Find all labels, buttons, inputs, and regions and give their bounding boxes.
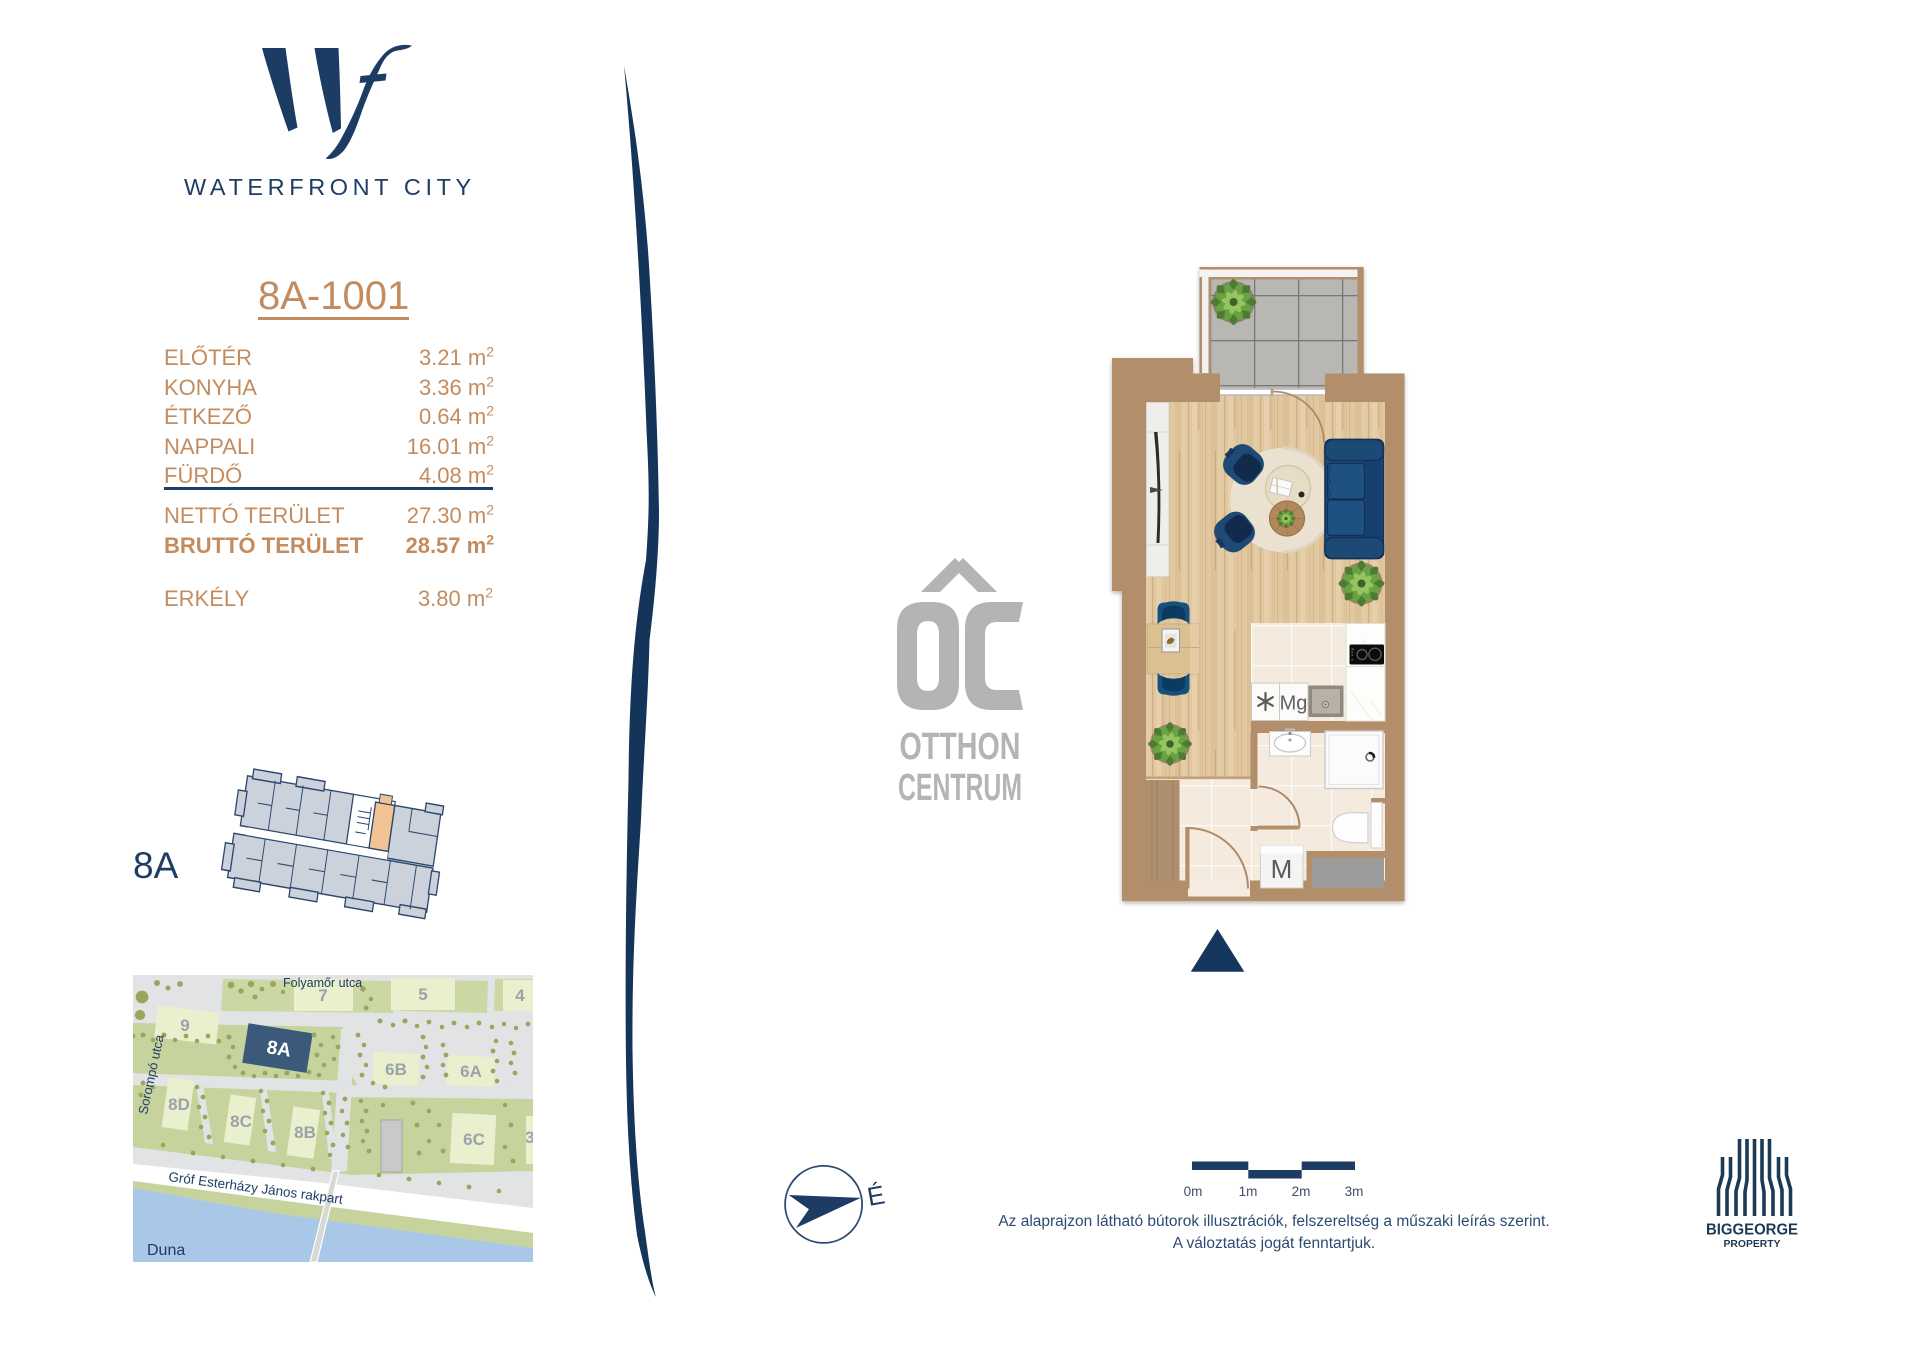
svg-text:8D: 8D	[168, 1095, 190, 1114]
svg-text:É: É	[865, 1179, 887, 1212]
svg-text:CENTRUM: CENTRUM	[898, 767, 1022, 809]
svg-text:1m: 1m	[1239, 1184, 1258, 1199]
svg-text:2m: 2m	[1292, 1184, 1311, 1199]
svg-text:Folyamőr utca: Folyamőr utca	[283, 976, 362, 990]
svg-text:8C: 8C	[230, 1112, 252, 1131]
svg-text:6C: 6C	[463, 1130, 485, 1149]
svg-text:4: 4	[515, 986, 525, 1005]
svg-text:0m: 0m	[1184, 1184, 1203, 1199]
svg-text:8A: 8A	[265, 1037, 293, 1062]
svg-text:6B: 6B	[385, 1060, 407, 1079]
svg-text:PROPERTY: PROPERTY	[1724, 1238, 1781, 1250]
svg-text:BIGGEORGE: BIGGEORGE	[1706, 1222, 1798, 1239]
svg-text:6A: 6A	[460, 1062, 482, 1081]
svg-text:3m: 3m	[1345, 1184, 1364, 1199]
svg-text:M: M	[1271, 854, 1293, 884]
svg-text:5: 5	[418, 985, 427, 1004]
svg-text:Mg: Mg	[1280, 693, 1308, 715]
svg-text:8B: 8B	[294, 1123, 316, 1142]
svg-text:3C: 3C	[525, 1128, 533, 1147]
svg-text:Duna: Duna	[147, 1242, 185, 1259]
svg-text:OTTHON: OTTHON	[900, 726, 1021, 768]
svg-text:9: 9	[180, 1016, 189, 1035]
